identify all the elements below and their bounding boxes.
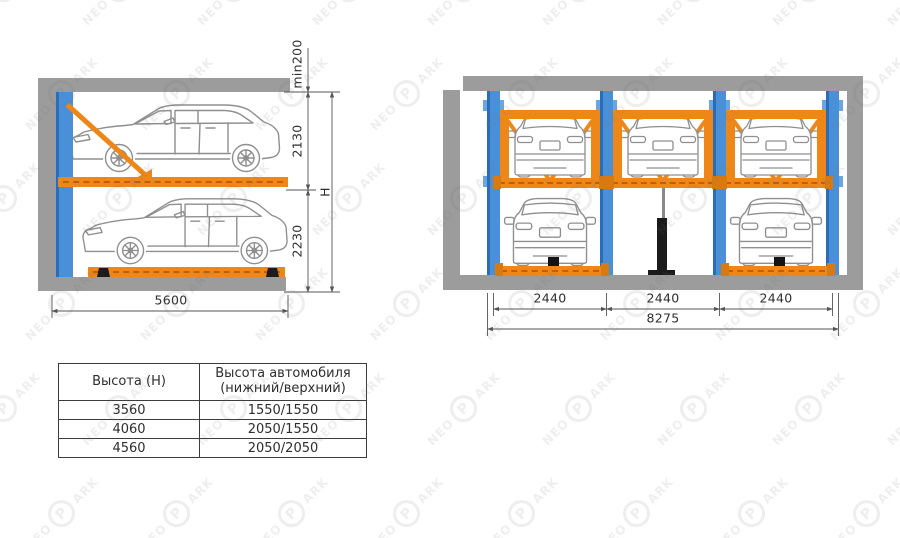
dim-bay1-width: 2440 bbox=[533, 291, 566, 306]
neo-park-watermark: NEOPARK bbox=[535, 0, 623, 32]
dim-bay2-width: 2440 bbox=[646, 291, 679, 306]
p-badge-icon: P bbox=[330, 179, 368, 217]
p-badge-icon: P bbox=[388, 74, 426, 112]
p-badge-icon: P bbox=[675, 389, 713, 427]
side-lower-platform bbox=[88, 267, 285, 277]
dim-total-width: 8275 bbox=[646, 311, 679, 326]
lower-car-side-view bbox=[78, 189, 296, 271]
dim-min-ceiling-gap: min200 bbox=[290, 39, 305, 88]
p-badge-icon: P bbox=[43, 494, 81, 532]
p-badge-icon: P bbox=[0, 179, 23, 217]
neo-park-watermark: NEOPARK bbox=[190, 0, 278, 32]
cylinder-base bbox=[648, 270, 675, 275]
bay1-lower-platform bbox=[496, 266, 604, 276]
header-car-height-line1: Высота автомобиля bbox=[200, 367, 366, 382]
platform-end-cap bbox=[495, 263, 503, 276]
dim-upper-level-height: 2130 bbox=[290, 124, 305, 157]
table-row: 4560 2050/2050 bbox=[59, 439, 367, 458]
p-badge-icon: P bbox=[560, 0, 598, 7]
side-left-wall bbox=[38, 78, 56, 291]
height-value: 4060 bbox=[59, 420, 200, 439]
neo-park-watermark: NEOPARK bbox=[420, 0, 508, 32]
neo-park-watermark: NEOPARK bbox=[305, 155, 393, 243]
p-badge-icon: P bbox=[733, 494, 771, 532]
table-row: 3560 1550/1550 bbox=[59, 401, 367, 420]
neo-park-watermark: NEOPARK bbox=[650, 0, 738, 32]
bay1-top-beam bbox=[500, 110, 600, 119]
dim-platform-length: 5600 bbox=[154, 293, 187, 308]
bay1-upper-car bbox=[504, 111, 596, 179]
car-height-value: 2050/2050 bbox=[200, 439, 367, 458]
p-badge-icon: P bbox=[675, 0, 713, 7]
p-badge-icon: P bbox=[790, 0, 828, 7]
neo-park-watermark: NEOPARK bbox=[363, 470, 451, 538]
header-height: Высота (H) bbox=[59, 364, 200, 401]
neo-park-watermark: NEOPARK bbox=[75, 0, 163, 32]
car-height-value: 2050/1550 bbox=[200, 420, 367, 439]
platform-end-cap bbox=[719, 176, 727, 189]
platform-end-cap bbox=[606, 176, 614, 189]
p-badge-icon: P bbox=[388, 284, 426, 322]
side-ceiling bbox=[38, 78, 290, 92]
neo-park-watermark: NEOPARK bbox=[650, 365, 738, 453]
p-badge-icon: P bbox=[158, 494, 196, 532]
hydraulic-cylinder bbox=[657, 218, 667, 272]
dim-total-height: H bbox=[318, 187, 333, 197]
neo-park-watermark: NEOPARK bbox=[880, 0, 900, 32]
neo-park-watermark: NEOPARK bbox=[305, 0, 393, 32]
side-floor bbox=[38, 277, 286, 291]
dim-lower-level-height: 2230 bbox=[290, 224, 305, 257]
neo-park-watermark: NEOPARK bbox=[535, 365, 623, 453]
p-badge-icon: P bbox=[790, 389, 828, 427]
table-header-row: Высота (H) Высота автомобиля (нижний/вер… bbox=[59, 364, 367, 401]
bay3-upper-car bbox=[730, 111, 822, 179]
front-ceiling bbox=[463, 76, 863, 91]
side-platform-foot-right bbox=[266, 268, 279, 277]
bay2-left-post bbox=[613, 110, 622, 188]
platform-end-cap bbox=[825, 176, 833, 189]
neo-park-watermark: NEOPARK bbox=[478, 470, 566, 538]
bay3-lower-platform bbox=[722, 266, 830, 276]
height-spec-table: Высота (H) Высота автомобиля (нижний/вер… bbox=[58, 363, 367, 458]
bay3-left-post bbox=[726, 110, 735, 188]
neo-park-watermark: NEOPARK bbox=[363, 50, 451, 138]
neo-park-watermark: NEOPARK bbox=[18, 470, 106, 538]
bay3-top-beam bbox=[726, 110, 826, 119]
p-badge-icon: P bbox=[0, 389, 23, 427]
bay2-upper-car bbox=[617, 111, 709, 179]
side-upper-platform bbox=[58, 177, 288, 187]
parking-lift-drawing: min200 2130 2230 H 5600 2440 2440 2440 8… bbox=[0, 0, 900, 538]
neo-park-watermark: NEOPARK bbox=[248, 470, 336, 538]
bay1-upper-platform bbox=[494, 178, 606, 188]
bay3-wheel-stop bbox=[774, 257, 785, 266]
neo-park-watermark: NEOPARK bbox=[0, 0, 48, 32]
side-platform-foot-left bbox=[97, 268, 110, 277]
table-row: 4060 2050/1550 bbox=[59, 420, 367, 439]
platform-end-cap bbox=[721, 263, 729, 276]
p-badge-icon: P bbox=[445, 0, 483, 7]
p-badge-icon: P bbox=[388, 494, 426, 532]
neo-park-watermark: NEOPARK bbox=[0, 365, 48, 453]
p-badge-icon: P bbox=[560, 389, 598, 427]
neo-park-watermark: NEOPARK bbox=[420, 365, 508, 453]
height-value: 3560 bbox=[59, 401, 200, 420]
bay1-left-post bbox=[500, 110, 509, 188]
neo-park-watermark: NEOPARK bbox=[880, 365, 900, 453]
p-badge-icon: P bbox=[445, 389, 483, 427]
p-badge-icon: P bbox=[0, 0, 23, 7]
neo-park-watermark: NEOPARK bbox=[708, 470, 796, 538]
front-floor bbox=[443, 275, 863, 290]
bay2-top-beam bbox=[613, 110, 713, 119]
platform-end-cap bbox=[601, 263, 609, 276]
height-value: 4560 bbox=[59, 439, 200, 458]
neo-park-watermark: NEOPARK bbox=[765, 0, 853, 32]
neo-park-watermark: NEOPARK bbox=[593, 470, 681, 538]
neo-park-watermark: NEOPARK bbox=[823, 470, 900, 538]
p-badge-icon: P bbox=[215, 0, 253, 7]
neo-park-watermark: NEOPARK bbox=[133, 470, 221, 538]
p-badge-icon: P bbox=[100, 0, 138, 7]
dim-bay3-width: 2440 bbox=[759, 291, 792, 306]
p-badge-icon: P bbox=[330, 0, 368, 7]
front-left-wall bbox=[443, 90, 460, 290]
p-badge-icon: P bbox=[273, 494, 311, 532]
bay1-wheel-stop bbox=[548, 257, 559, 266]
p-badge-icon: P bbox=[618, 494, 656, 532]
neo-park-watermark: NEOPARK bbox=[880, 155, 900, 243]
p-badge-icon: P bbox=[503, 494, 541, 532]
platform-end-cap bbox=[827, 263, 835, 276]
neo-park-watermark: NEOPARK bbox=[363, 260, 451, 348]
bay3-upper-platform bbox=[720, 178, 832, 188]
header-car-height-line2: (нижний/верхний) bbox=[200, 382, 366, 397]
header-car-height: Высота автомобиля (нижний/верхний) bbox=[200, 364, 367, 401]
front-right-wall bbox=[847, 91, 863, 290]
p-badge-icon: P bbox=[848, 494, 886, 532]
lift-piston-rod bbox=[662, 188, 665, 218]
platform-end-cap bbox=[493, 176, 501, 189]
car-height-value: 1550/1550 bbox=[200, 401, 367, 420]
neo-park-watermark: NEOPARK bbox=[765, 365, 853, 453]
bay2-upper-platform bbox=[607, 178, 719, 188]
